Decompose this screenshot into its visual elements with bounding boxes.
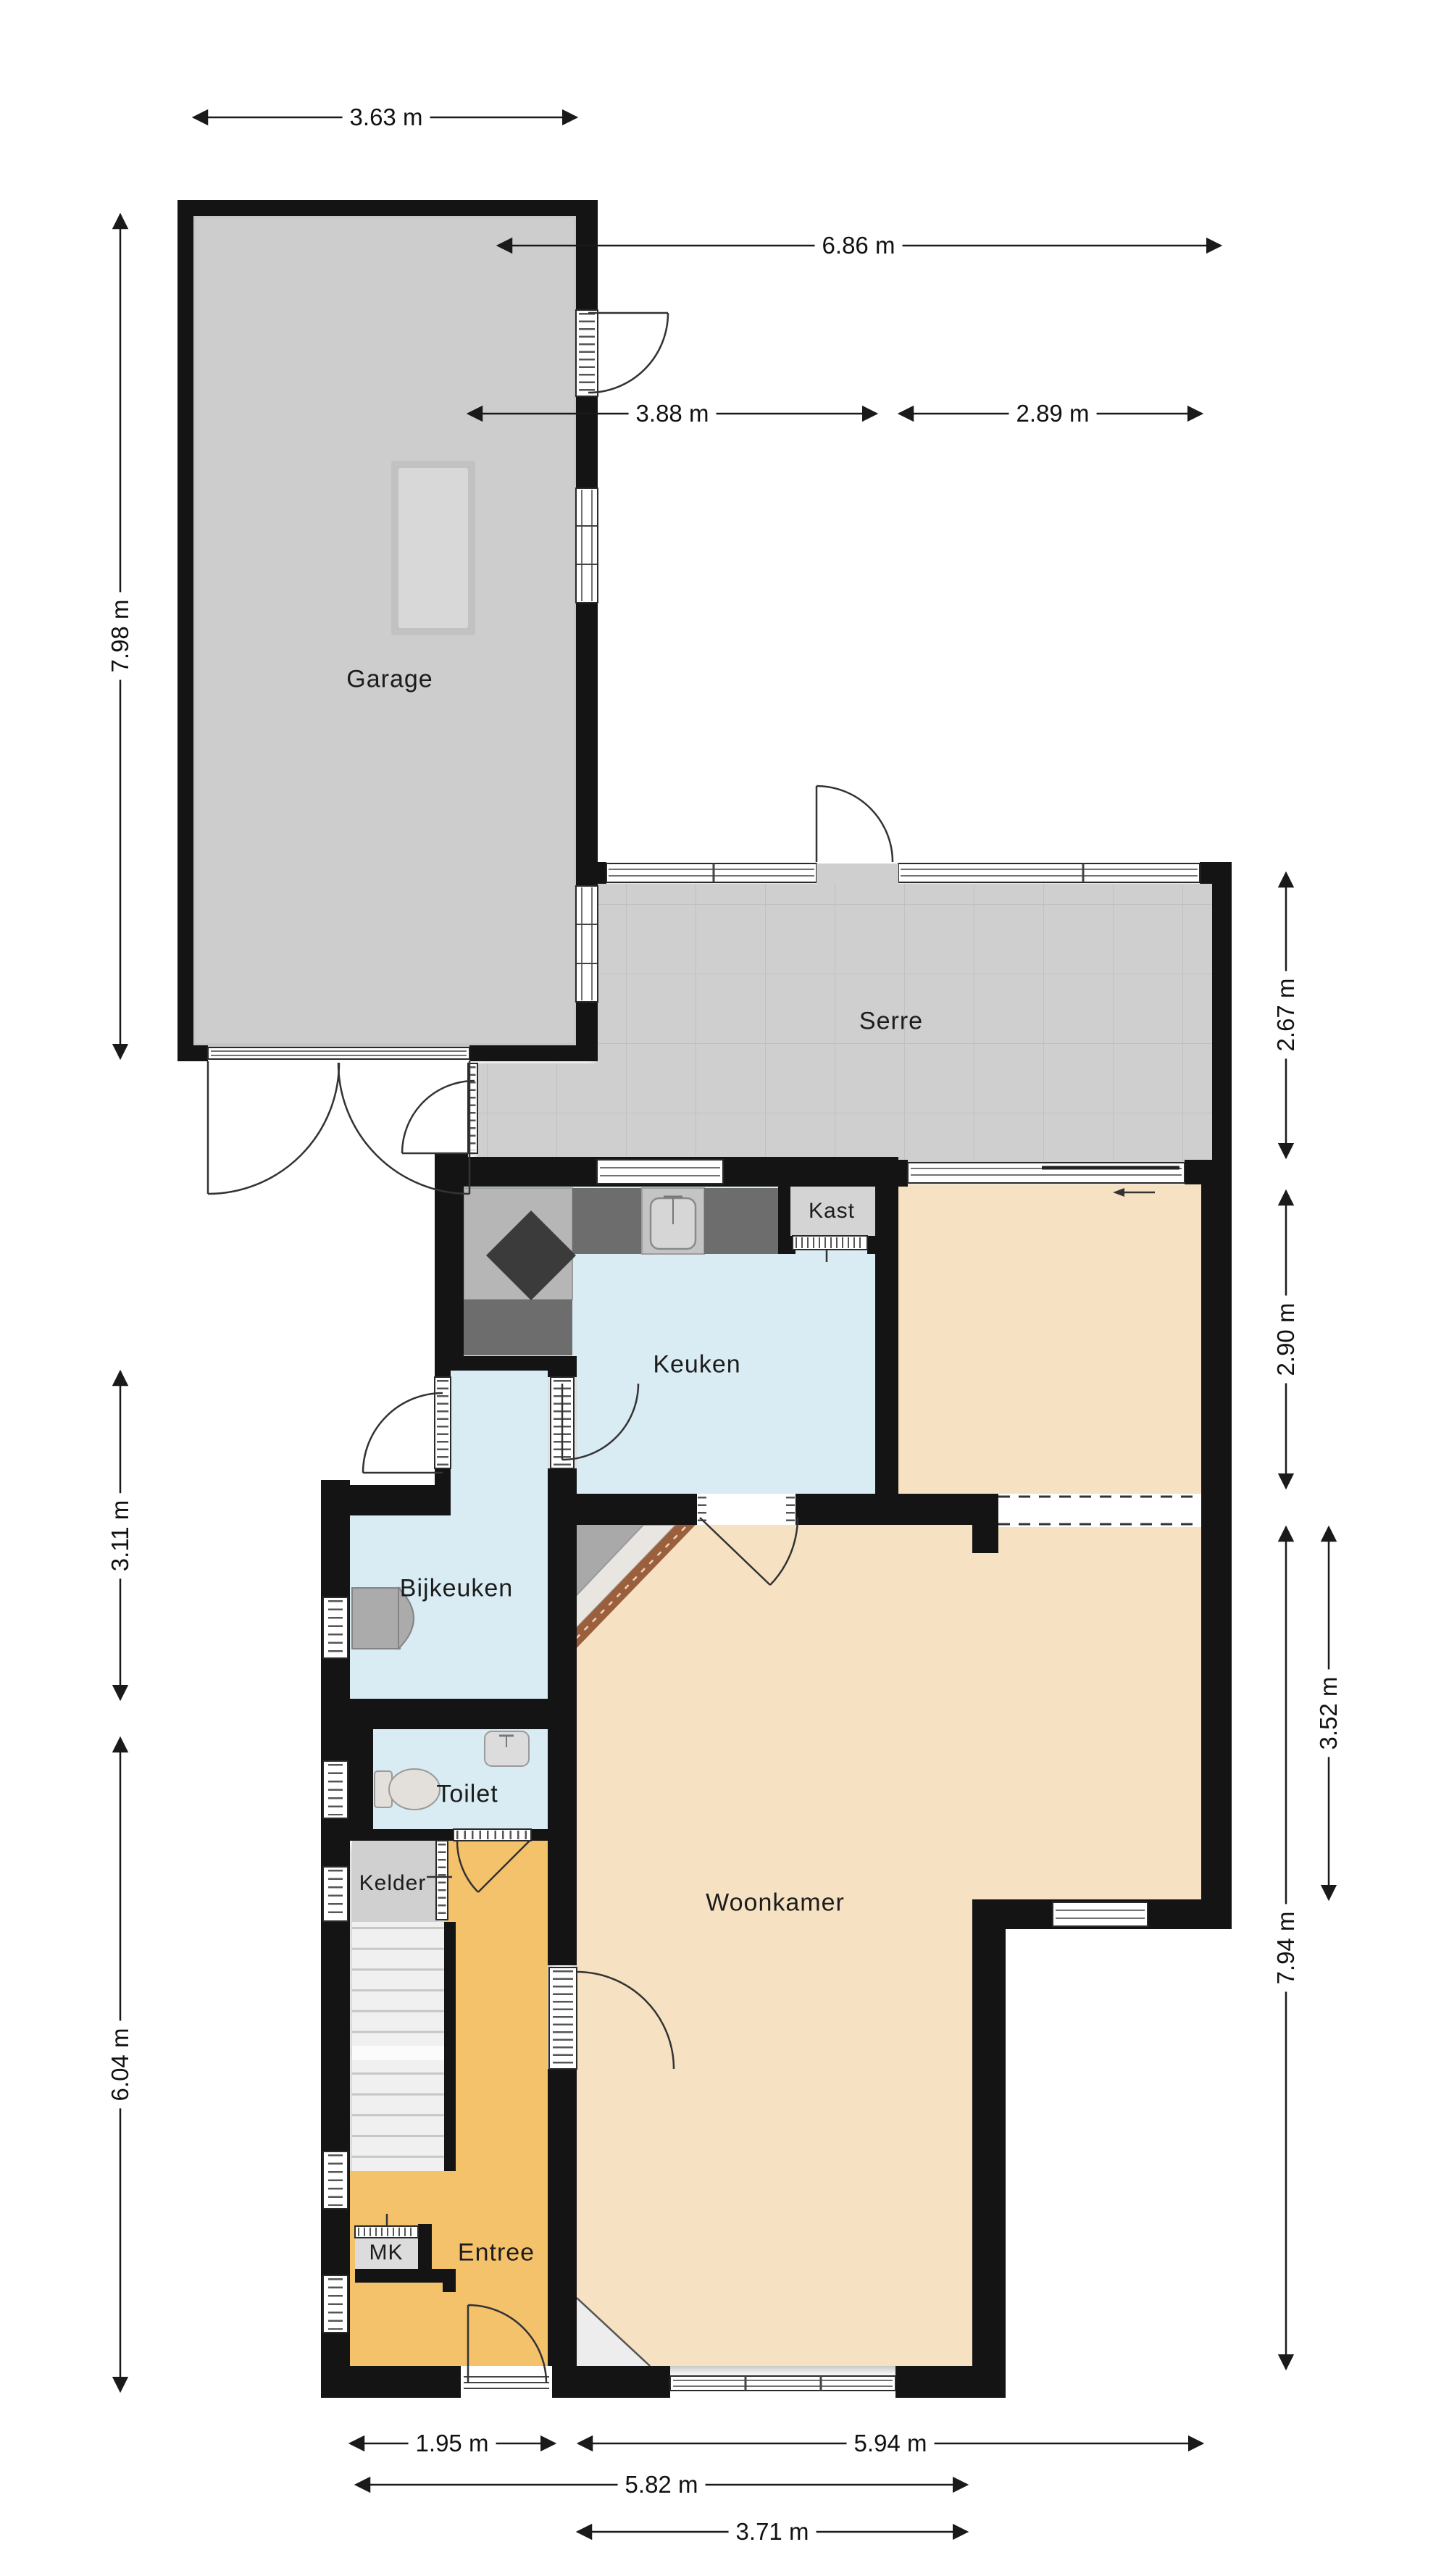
frontroom-floor — [898, 1184, 1201, 1494]
dim-right-794: 7.94 m — [1272, 1904, 1300, 1992]
wc — [375, 1769, 440, 1810]
dim-bottom-371: 3.71 m — [729, 2518, 817, 2546]
room-label-toilet: Toilet — [436, 1781, 498, 1809]
room-label-kast: Kast — [809, 1199, 855, 1224]
room-label-serre: Serre — [859, 1008, 923, 1036]
kitchen-sink — [651, 1197, 696, 1249]
stairs-break — [352, 2046, 444, 2060]
room-label-garage: Garage — [346, 666, 433, 694]
room-label-mk: MK — [369, 2241, 404, 2265]
dim-top-289: 2.89 m — [1009, 400, 1097, 427]
dim-bottom-594: 5.94 m — [847, 2430, 935, 2457]
garage-skylight — [391, 461, 475, 635]
dim-left-798: 7.98 m — [107, 593, 134, 680]
room-label-entree: Entree — [458, 2239, 535, 2267]
floorplan-drawing — [0, 0, 1449, 2576]
toilet-sink — [485, 1731, 529, 1766]
open-passage — [998, 1494, 1201, 1527]
dim-top-363: 3.63 m — [343, 104, 430, 131]
floorplan-canvas: Garage Serre Keuken Kast Bijkeuken Toile… — [0, 0, 1449, 2576]
woonkamer-floor — [577, 1525, 1203, 2366]
dim-top-388: 3.88 m — [629, 400, 717, 427]
room-label-woonkamer: Woonkamer — [706, 1889, 845, 1918]
dim-right-267: 2.67 m — [1272, 971, 1300, 1059]
dim-bottom-195: 1.95 m — [409, 2430, 496, 2457]
dim-top-686: 6.86 m — [815, 232, 903, 259]
dim-left-311: 3.11 m — [107, 1493, 134, 1578]
dim-right-290: 2.90 m — [1272, 1296, 1300, 1384]
garage-floor — [193, 216, 576, 1045]
room-label-bijkeuken: Bijkeuken — [400, 1575, 513, 1603]
dim-right-352: 3.52 m — [1315, 1670, 1342, 1757]
room-label-kelder: Kelder — [359, 1871, 427, 1896]
room-label-keuken: Keuken — [653, 1351, 740, 1379]
dim-left-604: 6.04 m — [107, 2021, 134, 2109]
dim-bottom-582: 5.82 m — [618, 2471, 706, 2498]
